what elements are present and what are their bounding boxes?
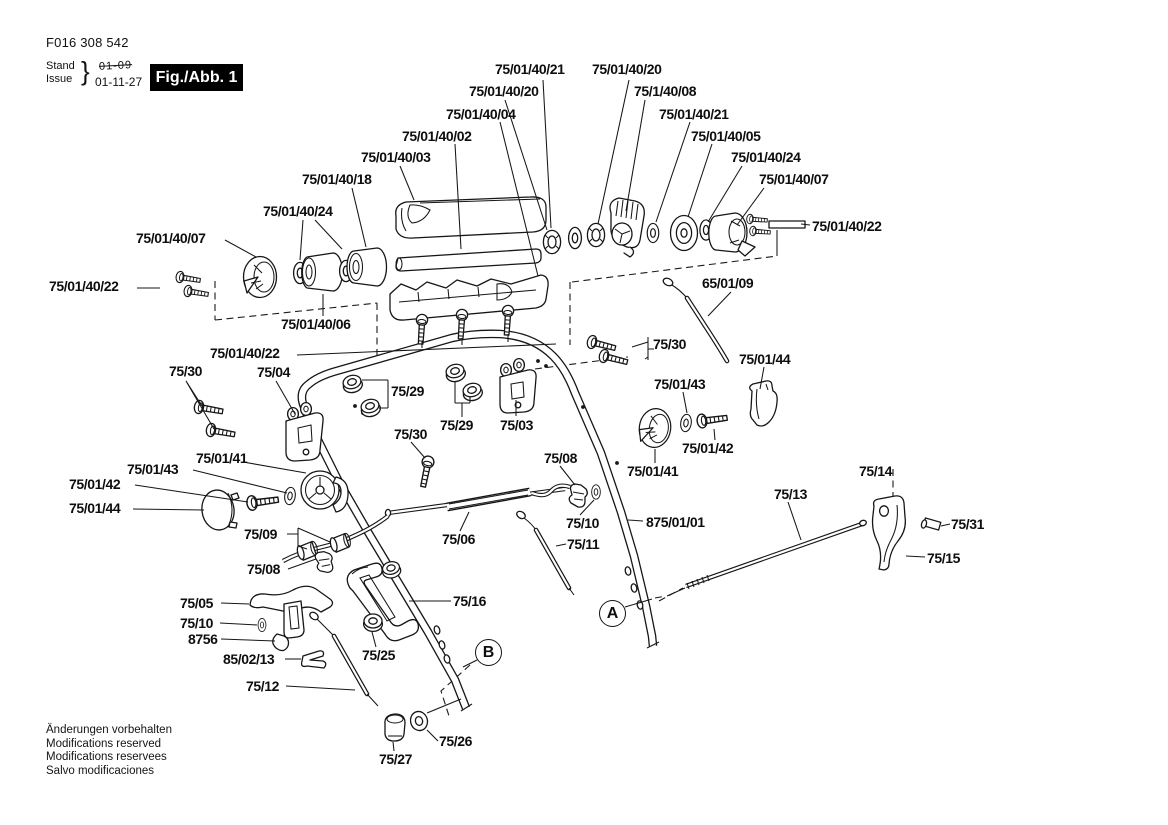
issue-date: 01-11-27 bbox=[95, 75, 142, 89]
cross-bar-75-06 bbox=[385, 486, 570, 517]
parts-diagram-page: F016 308 542 Stand Issue } 01-09 01-11-2… bbox=[0, 0, 1168, 825]
part-label: 75/29 bbox=[391, 384, 424, 398]
stand-label: Stand bbox=[46, 60, 75, 73]
part-label: 75/29 bbox=[440, 418, 473, 432]
roller-assembly bbox=[175, 197, 805, 344]
section-marker-b: B bbox=[475, 639, 502, 666]
part-label: 75/16 bbox=[453, 594, 486, 608]
part-label: 75/01/40/22 bbox=[49, 279, 119, 293]
part-label: 75/01/40/02 bbox=[402, 129, 472, 143]
part-label: 75/10 bbox=[566, 516, 599, 530]
part-label: 65/01/09 bbox=[702, 276, 753, 290]
footer-line-es: Salvo modificaciones bbox=[46, 765, 172, 779]
part-label: 75/01/44 bbox=[739, 352, 790, 366]
part-label: 75/01/41 bbox=[196, 451, 247, 465]
part-label: 75/08 bbox=[247, 562, 280, 576]
document-number: F016 308 542 bbox=[46, 35, 129, 50]
nut-75-25 bbox=[364, 614, 383, 631]
part-label: 75/08 bbox=[544, 451, 577, 465]
part-label: 8756 bbox=[188, 632, 218, 646]
clamp-75-08-right bbox=[569, 484, 587, 507]
part-label: 75/01/44 bbox=[69, 501, 120, 515]
part-label: 75/01/40/18 bbox=[302, 172, 372, 186]
part-label: 75/01/40/03 bbox=[361, 150, 431, 164]
part-label: 75/01/41 bbox=[627, 464, 678, 478]
part-label: 75/01/40/07 bbox=[136, 231, 206, 245]
figure-label-badge: Fig./Abb. 1 bbox=[150, 64, 243, 91]
issue-label: Issue bbox=[46, 73, 75, 86]
section-marker-a: A bbox=[599, 600, 626, 627]
stand-issue-labels: Stand Issue bbox=[46, 60, 75, 86]
part-label: 75/01/40/21 bbox=[659, 107, 729, 121]
clip-85-02-13 bbox=[302, 651, 326, 668]
part-label: 75/12 bbox=[246, 679, 279, 693]
part-label: 75/01/42 bbox=[69, 477, 120, 491]
part-label: 75/01/40/06 bbox=[281, 317, 351, 331]
part-label: 75/09 bbox=[244, 527, 277, 541]
part-label: 75/01/40/05 bbox=[691, 129, 761, 143]
part-label: 75/1/40/08 bbox=[634, 84, 696, 98]
part-label: 75/01/40/20 bbox=[592, 62, 662, 76]
cap-nut-75-27 bbox=[385, 714, 405, 741]
part-label: 75/01/40/20 bbox=[469, 84, 539, 98]
part-label: 875/01/01 bbox=[646, 515, 705, 529]
part-label: 75/01/40/04 bbox=[446, 107, 516, 121]
part-label: 75/13 bbox=[774, 487, 807, 501]
part-label: 75/26 bbox=[439, 734, 472, 748]
part-label: 75/01/40/07 bbox=[759, 172, 829, 186]
part-label: 75/10 bbox=[180, 616, 213, 630]
part-label: 75/04 bbox=[257, 365, 290, 379]
old-date-struck: 01-09 bbox=[99, 59, 133, 73]
pin-75-31 bbox=[921, 518, 941, 530]
brace-glyph: } bbox=[81, 56, 90, 87]
footer-line-en: Modifications reserved bbox=[46, 738, 172, 752]
latch-75-14 bbox=[873, 496, 906, 570]
part-label: 85/02/13 bbox=[223, 652, 274, 666]
part-label: 75/06 bbox=[442, 532, 475, 546]
part-label: 75/01/40/24 bbox=[731, 150, 801, 164]
clip-75-01-44-right bbox=[750, 381, 777, 426]
left-pivot-group bbox=[199, 471, 348, 532]
part-label: 75/01/40/21 bbox=[495, 62, 565, 76]
part-label: 75/30 bbox=[394, 427, 427, 441]
part-label: 75/30 bbox=[169, 364, 202, 378]
cap-75-01-41-right bbox=[637, 407, 673, 450]
footer-line-de: Änderungen vorbehalten bbox=[46, 724, 172, 738]
part-label: 75/01/40/22 bbox=[210, 346, 280, 360]
exploded-view-drawing bbox=[0, 0, 1168, 825]
part-label: 75/03 bbox=[500, 418, 533, 432]
clamp-75-08-left bbox=[313, 549, 336, 575]
footer-line-fr: Modifications reservees bbox=[46, 751, 172, 765]
part-label: 75/31 bbox=[951, 517, 984, 531]
clamp-75-04 bbox=[286, 403, 323, 461]
rod-75-13 bbox=[686, 519, 867, 589]
part-label: 75/01/43 bbox=[127, 462, 178, 476]
part-label: 75/01/43 bbox=[654, 377, 705, 391]
footer-notice: Änderungen vorbehalten Modifications res… bbox=[46, 724, 172, 778]
part-label: 75/14 bbox=[859, 464, 892, 478]
part-label: 75/01/40/22 bbox=[812, 219, 882, 233]
part-label: 75/25 bbox=[362, 648, 395, 662]
part-label: 75/30 bbox=[653, 337, 686, 351]
washer-75-26 bbox=[409, 710, 430, 733]
part-label: 75/01/40/24 bbox=[263, 204, 333, 218]
left-end-cap bbox=[244, 257, 277, 298]
part-label: 75/05 bbox=[180, 596, 213, 610]
part-label: 75/11 bbox=[567, 537, 599, 551]
part-label: 75/01/42 bbox=[682, 441, 733, 455]
part-label: 75/15 bbox=[927, 551, 960, 565]
clamp-75-03 bbox=[500, 359, 536, 413]
part-label: 75/27 bbox=[379, 752, 412, 766]
